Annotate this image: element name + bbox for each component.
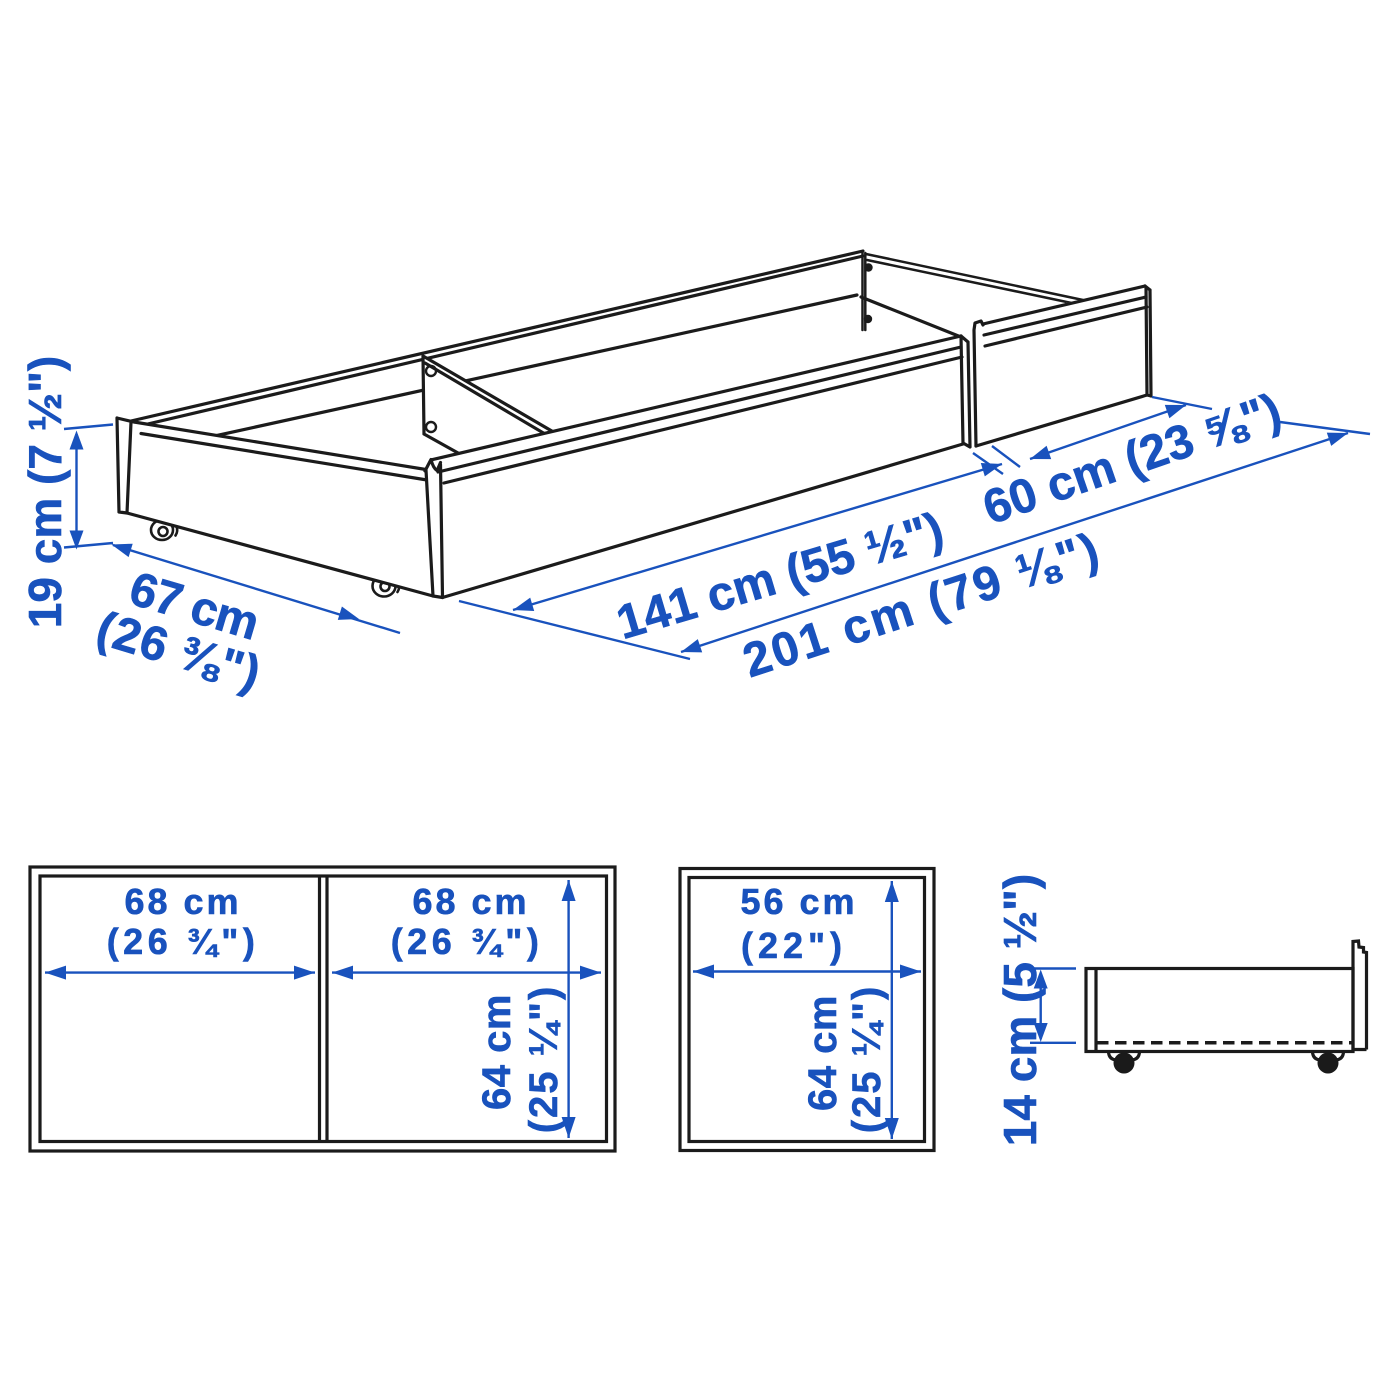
svg-text:68 cm: 68 cm xyxy=(412,881,529,922)
svg-text:64 cm: 64 cm xyxy=(801,995,845,1111)
svg-text:(25 ¼"): (25 ¼") xyxy=(522,985,566,1134)
svg-text:14 cm (5 ½"): 14 cm (5 ½") xyxy=(994,874,1046,1146)
svg-text:(22"): (22") xyxy=(741,925,847,966)
svg-text:(25 ¼"): (25 ¼") xyxy=(845,985,889,1134)
svg-text:64 cm: 64 cm xyxy=(475,994,519,1110)
svg-text:56 cm: 56 cm xyxy=(740,881,857,922)
svg-text:(26 ¾"): (26 ¾") xyxy=(107,921,260,962)
svg-text:19 cm (7 ½"): 19 cm (7 ½") xyxy=(19,356,71,628)
svg-text:(26 ¾"): (26 ¾") xyxy=(391,921,544,962)
svg-text:68 cm: 68 cm xyxy=(124,881,241,922)
